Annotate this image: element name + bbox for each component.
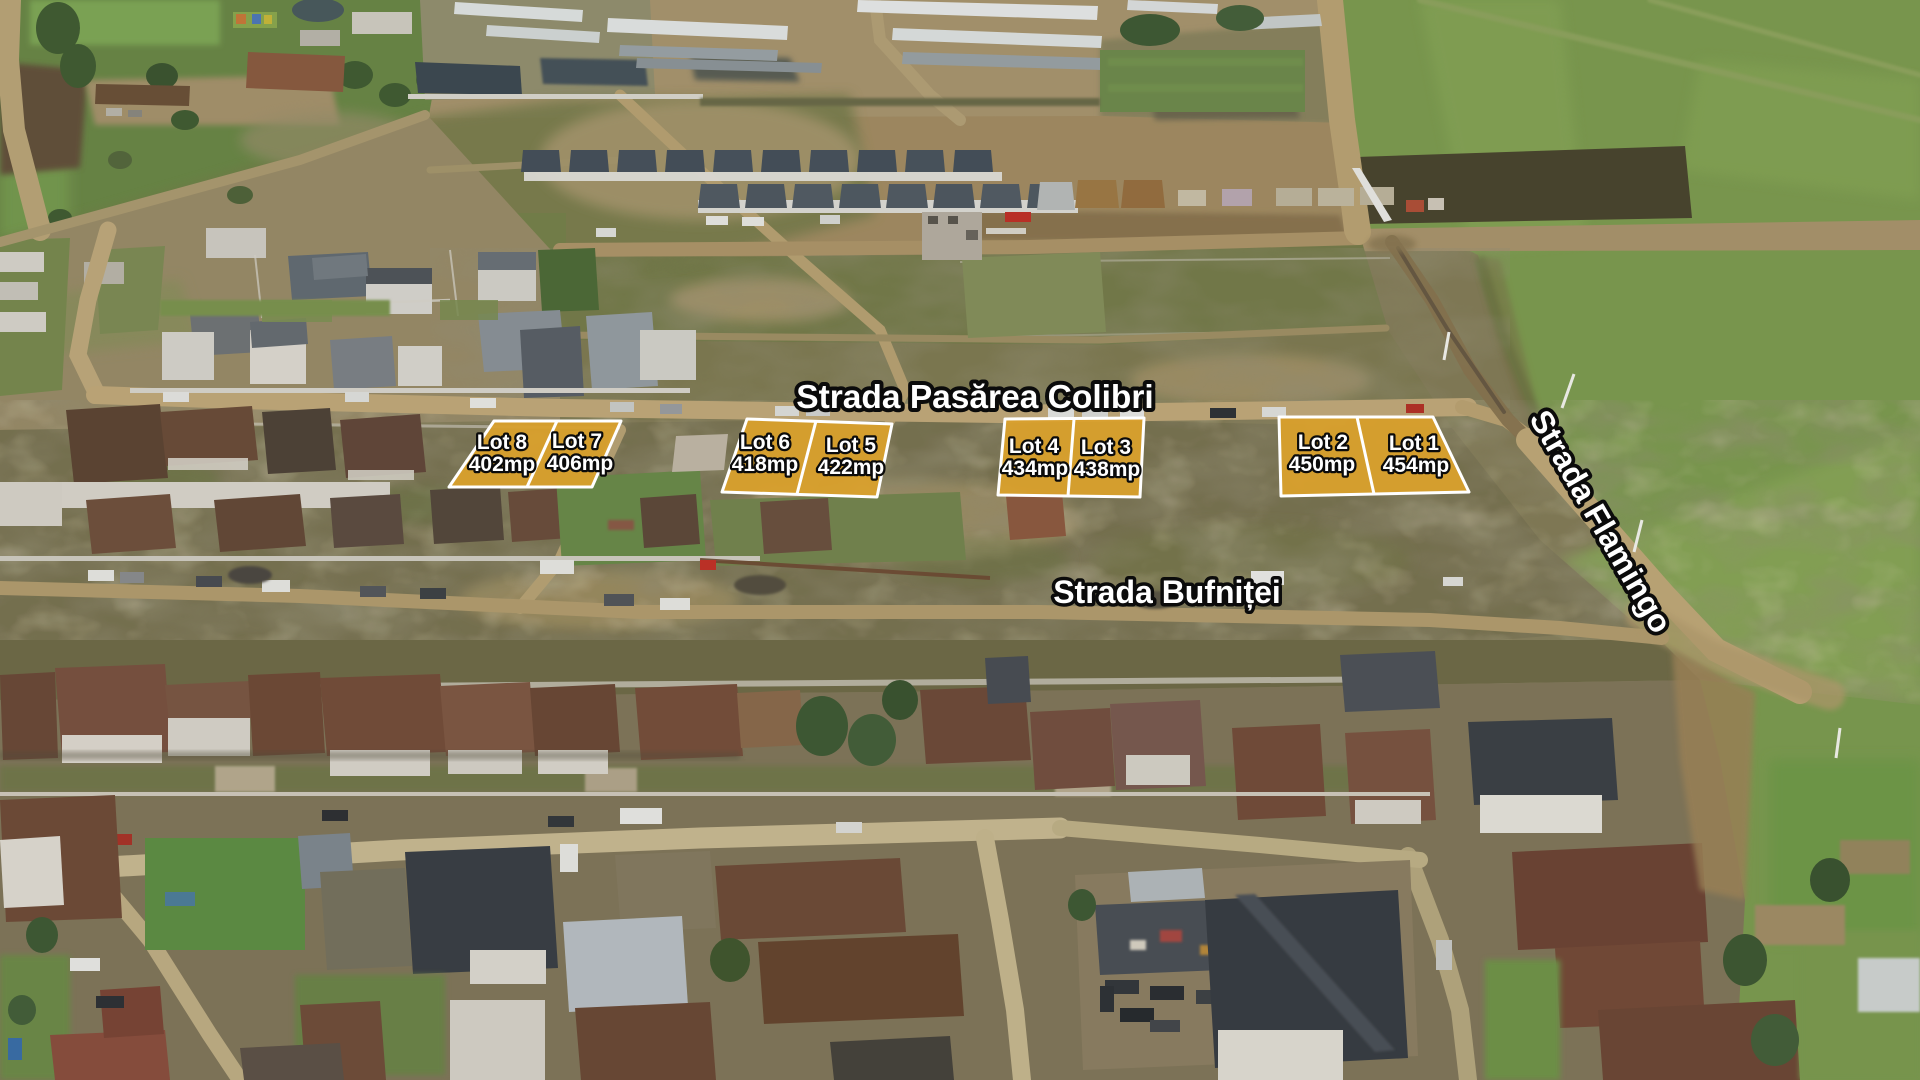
svg-text:Lot 3: Lot 3 bbox=[1081, 436, 1131, 459]
svg-text:Lot 6: Lot 6 bbox=[740, 431, 790, 454]
svg-text:406mp: 406mp bbox=[547, 452, 614, 475]
svg-text:Lot 5: Lot 5 bbox=[826, 434, 876, 457]
svg-text:402mp: 402mp bbox=[469, 453, 536, 476]
svg-text:418mp: 418mp bbox=[732, 453, 799, 476]
svg-text:434mp: 434mp bbox=[1002, 457, 1069, 480]
svg-text:Lot 4: Lot 4 bbox=[1009, 435, 1059, 458]
svg-text:Lot 8: Lot 8 bbox=[477, 431, 527, 454]
svg-text:Lot 7: Lot 7 bbox=[552, 430, 602, 453]
svg-text:Lot 1: Lot 1 bbox=[1389, 432, 1439, 455]
svg-text:Strada Bufniței: Strada Bufniței bbox=[1053, 574, 1281, 610]
svg-text:450mp: 450mp bbox=[1289, 453, 1356, 476]
svg-text:Lot 2: Lot 2 bbox=[1298, 431, 1348, 454]
svg-text:Strada Pasărea Colibri: Strada Pasărea Colibri bbox=[796, 379, 1154, 416]
svg-text:454mp: 454mp bbox=[1383, 454, 1450, 477]
svg-text:422mp: 422mp bbox=[818, 456, 885, 479]
svg-text:438mp: 438mp bbox=[1074, 458, 1141, 481]
